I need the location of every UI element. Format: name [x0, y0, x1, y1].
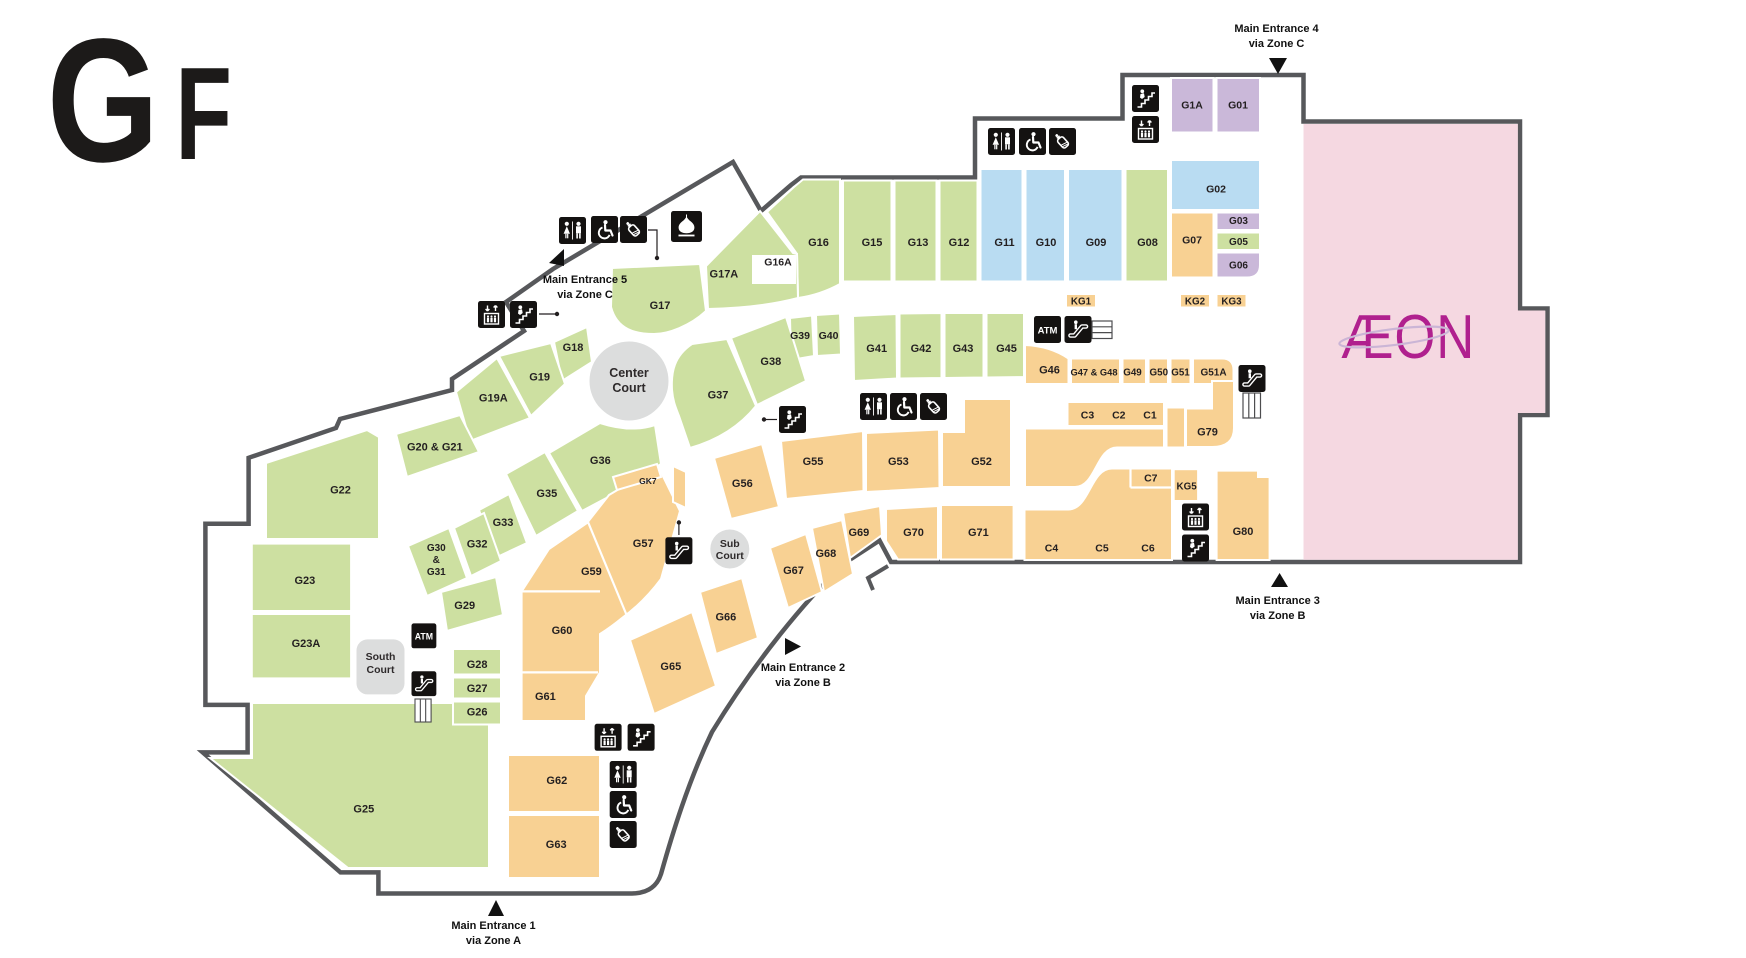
svg-text:KG5: KG5 [1177, 481, 1198, 492]
svg-text:KG1: KG1 [1071, 296, 1092, 307]
svg-text:G16: G16 [808, 237, 829, 249]
svg-text:via Zone C: via Zone C [557, 289, 613, 301]
svg-text:G26: G26 [467, 706, 488, 718]
svg-text:G49: G49 [1123, 367, 1142, 378]
svg-text:G59: G59 [581, 566, 602, 578]
svg-text:G51: G51 [1171, 367, 1190, 378]
svg-text:G66: G66 [716, 612, 737, 624]
svg-text:G79: G79 [1197, 426, 1218, 438]
svg-text:G23A: G23A [292, 638, 321, 650]
svg-text:G55: G55 [803, 456, 824, 468]
svg-text:ÆON: ÆON [1341, 303, 1475, 372]
svg-text:G69: G69 [849, 527, 870, 539]
svg-text:G06: G06 [1229, 261, 1248, 272]
svg-text:C6: C6 [1141, 542, 1155, 554]
svg-text:Court: Court [716, 550, 744, 562]
svg-text:G45: G45 [996, 343, 1017, 355]
svg-text:G68: G68 [816, 548, 837, 560]
svg-text:G13: G13 [908, 237, 929, 249]
svg-text:G51A: G51A [1200, 368, 1226, 379]
svg-text:G16A: G16A [764, 257, 792, 269]
svg-text:G47 & G48: G47 & G48 [1070, 367, 1117, 377]
svg-text:G65: G65 [660, 661, 681, 673]
svg-text:G10: G10 [1036, 237, 1057, 249]
svg-text:F: F [175, 41, 231, 188]
svg-text:G35: G35 [536, 488, 557, 500]
svg-text:&: & [433, 555, 440, 566]
svg-text:via Zone B: via Zone B [775, 677, 831, 689]
svg-text:C7: C7 [1144, 473, 1158, 485]
svg-text:via Zone A: via Zone A [466, 935, 521, 947]
svg-text:G53: G53 [888, 456, 909, 468]
svg-text:G03: G03 [1229, 216, 1248, 227]
svg-text:G40: G40 [819, 330, 839, 342]
svg-text:G43: G43 [953, 343, 974, 355]
svg-text:G19: G19 [529, 371, 550, 383]
svg-text:G70: G70 [903, 527, 924, 539]
svg-text:G07: G07 [1182, 235, 1202, 247]
svg-text:G01: G01 [1228, 100, 1248, 112]
svg-text:G30: G30 [427, 543, 446, 554]
svg-text:Sub: Sub [720, 538, 740, 550]
svg-text:G22: G22 [330, 484, 351, 496]
svg-text:G27: G27 [467, 683, 488, 695]
svg-text:G1A: G1A [1181, 100, 1203, 112]
svg-text:G50: G50 [1150, 367, 1169, 378]
svg-text:G71: G71 [968, 527, 989, 539]
svg-text:G05: G05 [1229, 237, 1248, 248]
svg-text:G46: G46 [1039, 364, 1060, 376]
svg-text:South: South [366, 651, 396, 663]
svg-text:G60: G60 [552, 625, 573, 637]
svg-text:C5: C5 [1095, 542, 1109, 554]
svg-text:G52: G52 [971, 456, 992, 468]
svg-text:G19A: G19A [479, 392, 508, 404]
svg-text:G20 & G21: G20 & G21 [407, 441, 463, 453]
svg-text:G67: G67 [783, 565, 804, 577]
svg-text:G17A: G17A [710, 269, 739, 281]
svg-text:Main Entrance 3: Main Entrance 3 [1236, 595, 1320, 607]
svg-text:G31: G31 [427, 567, 446, 578]
svg-text:Court: Court [367, 664, 395, 676]
svg-text:Main Entrance 2: Main Entrance 2 [761, 662, 845, 674]
svg-text:G02: G02 [1206, 184, 1226, 196]
svg-text:G33: G33 [493, 517, 514, 529]
svg-text:KG3: KG3 [1221, 296, 1242, 307]
svg-text:G36: G36 [590, 455, 611, 467]
svg-text:G39: G39 [790, 330, 810, 342]
svg-text:G38: G38 [760, 356, 781, 368]
svg-text:Main Entrance 1: Main Entrance 1 [451, 920, 535, 932]
svg-text:C1: C1 [1143, 410, 1157, 422]
svg-text:Main Entrance 4: Main Entrance 4 [1234, 23, 1319, 35]
svg-text:G29: G29 [454, 600, 475, 612]
svg-text:G63: G63 [546, 839, 567, 851]
svg-text:G28: G28 [467, 659, 488, 671]
svg-text:G12: G12 [949, 237, 970, 249]
svg-text:G57: G57 [633, 538, 654, 550]
svg-text:G32: G32 [467, 538, 488, 550]
svg-text:G17: G17 [650, 300, 671, 312]
svg-text:Court: Court [612, 381, 646, 395]
svg-text:C2: C2 [1112, 410, 1126, 422]
svg-text:G18: G18 [563, 342, 584, 354]
svg-text:via Zone B: via Zone B [1250, 610, 1306, 622]
svg-text:KG2: KG2 [1185, 296, 1206, 307]
svg-text:G25: G25 [353, 803, 374, 815]
svg-text:G09: G09 [1086, 237, 1107, 249]
svg-text:G61: G61 [535, 691, 556, 703]
svg-text:Main Entrance 5: Main Entrance 5 [543, 274, 627, 286]
svg-text:G56: G56 [732, 478, 753, 490]
svg-text:G23: G23 [295, 575, 316, 587]
svg-text:G: G [47, 2, 159, 199]
svg-text:G15: G15 [862, 237, 883, 249]
svg-text:C3: C3 [1081, 410, 1095, 422]
svg-text:G11: G11 [994, 237, 1014, 249]
svg-text:G42: G42 [911, 343, 932, 355]
svg-text:via Zone C: via Zone C [1249, 38, 1305, 50]
svg-text:C4: C4 [1045, 542, 1059, 554]
svg-text:G62: G62 [546, 775, 567, 787]
svg-text:G37: G37 [708, 389, 729, 401]
svg-text:G08: G08 [1137, 237, 1158, 249]
svg-text:G80: G80 [1233, 526, 1254, 538]
svg-text:GK7: GK7 [639, 476, 657, 486]
svg-text:Center: Center [609, 366, 649, 380]
svg-text:G41: G41 [866, 343, 887, 355]
